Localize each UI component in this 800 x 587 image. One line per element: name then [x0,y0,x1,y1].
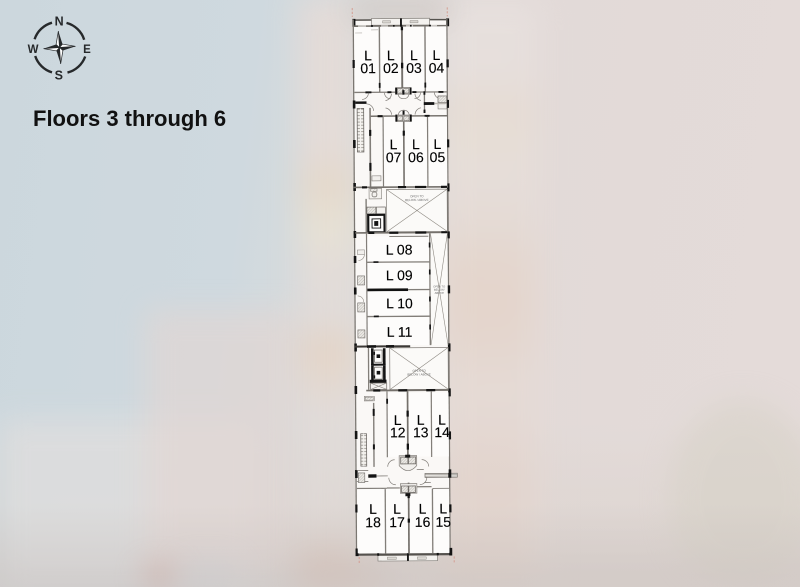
svg-text:15: 15 [435,514,451,530]
svg-text:L 10: L 10 [386,295,413,311]
svg-text:07: 07 [386,149,402,165]
svg-text:N: N [55,15,64,29]
svg-text:17: 17 [389,514,405,530]
svg-text:BELOW / ABOVE: BELOW / ABOVE [407,372,431,376]
svg-text:S: S [55,69,63,83]
svg-text:L 11: L 11 [387,324,413,340]
svg-text:L 08: L 08 [386,241,413,257]
svg-text:02: 02 [383,60,399,76]
svg-text:04: 04 [429,60,445,76]
svg-text:14: 14 [434,424,450,440]
svg-text:06: 06 [408,149,424,165]
svg-text:01: 01 [360,60,376,76]
svg-text:L 09: L 09 [386,267,413,283]
svg-text:ABOVE: ABOVE [435,291,444,295]
svg-text:BELOW / ABOVE: BELOW / ABOVE [405,198,429,202]
svg-text:05: 05 [430,149,446,165]
svg-text:16: 16 [415,514,431,530]
svg-text:18: 18 [365,514,381,530]
svg-text:13: 13 [413,424,429,440]
svg-text:E: E [83,44,91,56]
svg-text:12: 12 [390,424,406,440]
svg-text:03: 03 [406,60,422,76]
svg-text:W: W [28,44,39,56]
